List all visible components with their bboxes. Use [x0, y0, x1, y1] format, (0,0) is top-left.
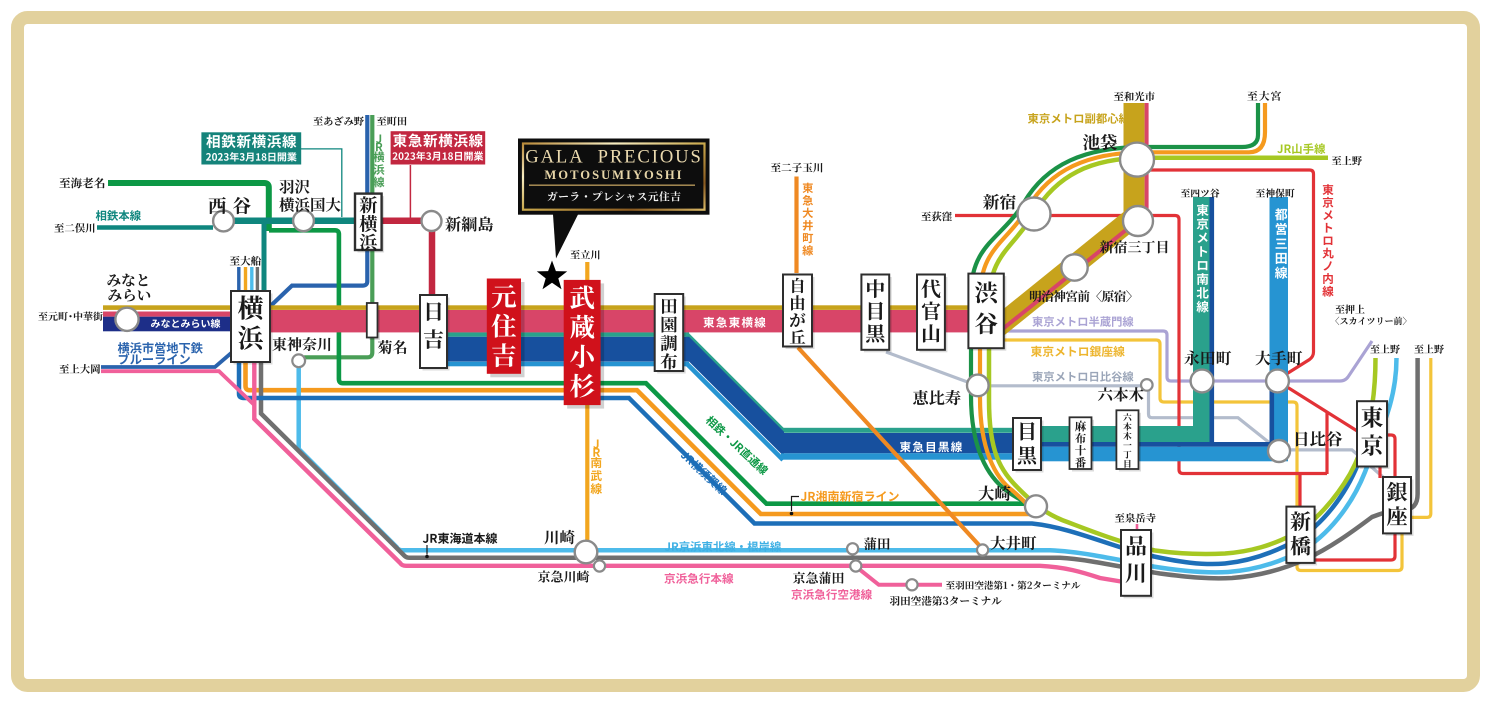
svg-text:MOTOSUMIYOSHI: MOTOSUMIYOSHI — [544, 168, 683, 182]
svg-text:GALA PRECIOUS: GALA PRECIOUS — [525, 147, 702, 168]
